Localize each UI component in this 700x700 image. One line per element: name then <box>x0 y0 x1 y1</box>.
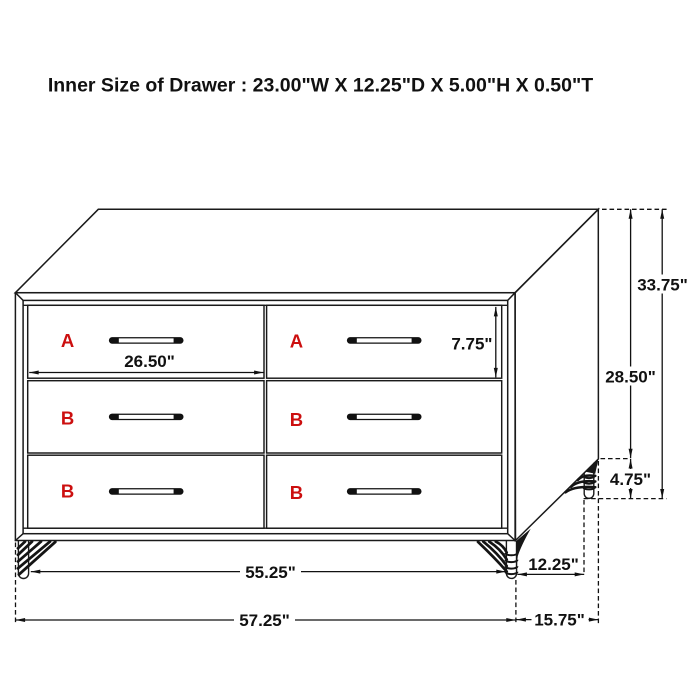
svg-text:B: B <box>290 482 303 503</box>
svg-text:15.75": 15.75" <box>534 611 585 630</box>
svg-text:A: A <box>290 330 303 351</box>
svg-text:57.25": 57.25" <box>239 611 290 630</box>
svg-text:B: B <box>61 480 74 501</box>
svg-text:7.75": 7.75" <box>451 335 492 354</box>
svg-text:28.50": 28.50" <box>605 367 656 386</box>
svg-text:A: A <box>61 330 74 351</box>
svg-text:55.25": 55.25" <box>245 563 296 582</box>
svg-text:Inner Size of Drawer : 23.00"W: Inner Size of Drawer : 23.00"W X 12.25"D… <box>48 75 593 97</box>
svg-text:B: B <box>290 409 303 430</box>
svg-text:B: B <box>61 408 74 429</box>
svg-text:4.75": 4.75" <box>610 470 651 489</box>
svg-text:12.25": 12.25" <box>528 555 579 574</box>
svg-text:33.75": 33.75" <box>637 275 688 294</box>
svg-text:26.50": 26.50" <box>124 352 175 371</box>
